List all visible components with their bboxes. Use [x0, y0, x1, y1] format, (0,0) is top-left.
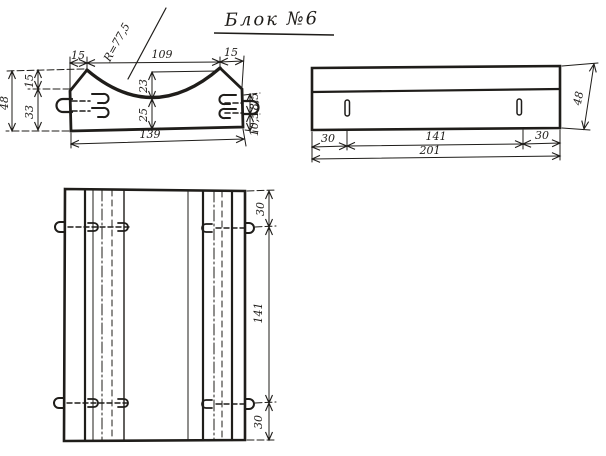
drawing-sheet: Блок №6 [0, 0, 606, 456]
dim-label: 23 [137, 79, 150, 94]
loop-slot [517, 99, 522, 115]
dim-line-15-right [220, 61, 243, 62]
plan-right-loop [245, 399, 254, 409]
left-anchor-hook [92, 108, 109, 117]
plan-view-labels: 30 141 30 [252, 202, 267, 429]
front-view [6, 8, 260, 148]
dim-label: 33 [23, 105, 36, 119]
dim-label: 25 [137, 108, 150, 123]
dim-label: 15 [224, 46, 238, 59]
side-view-labels: 30 141 30 201 48 [321, 90, 586, 157]
loop-slot [345, 100, 350, 116]
ext-line [562, 63, 598, 66]
dim-label: 30 [321, 132, 335, 145]
dim-line-109 [87, 62, 220, 63]
dim-line-30-left [312, 146, 347, 147]
drawing-title: Блок №6 [214, 8, 334, 35]
plan-right-loop [245, 223, 254, 233]
dim-label: 48 [0, 96, 11, 111]
ext-line [562, 128, 590, 130]
left-anchor-hook [92, 94, 109, 103]
dim-label: 201 [419, 144, 441, 157]
plan-view [54, 189, 276, 441]
dim-label: 30 [252, 415, 265, 429]
title-text: Блок №6 [223, 8, 319, 31]
dim-label: 139 [140, 128, 161, 141]
ext-line-dashed [255, 226, 276, 227]
ext-line-dashed [255, 402, 276, 403]
technical-drawing: Блок №6 [0, 0, 606, 456]
dim-line-30-right [523, 143, 560, 144]
dim-label: 15 [71, 49, 85, 62]
ext-line-dashed [6, 69, 84, 71]
ext-line [243, 129, 246, 146]
ext-line [152, 71, 218, 72]
dim-label: 109 [152, 48, 173, 61]
dim-label: 48 [571, 90, 587, 107]
front-view-labels: 15 109 15 139 48 15 33 23 25 R=77,5 18,5… [0, 21, 261, 141]
dim-label: 15 [23, 74, 36, 88]
dim-label: 141 [426, 130, 447, 143]
radius-leader-line [128, 8, 166, 79]
dim-label: 30 [535, 129, 549, 142]
plan-left-loop [55, 222, 65, 232]
side-block-outline [312, 66, 560, 130]
ext-line-dashed [247, 190, 276, 191]
radius-label: R=77,5 [101, 21, 133, 65]
title-underline [214, 33, 334, 35]
dim-label: 141 [252, 303, 265, 324]
dim-label: 10,5 [248, 112, 261, 137]
side-top-edge-line [312, 89, 560, 92]
side-view [312, 63, 598, 162]
plan-left-loop [54, 398, 64, 408]
dim-label: 30 [254, 202, 267, 216]
